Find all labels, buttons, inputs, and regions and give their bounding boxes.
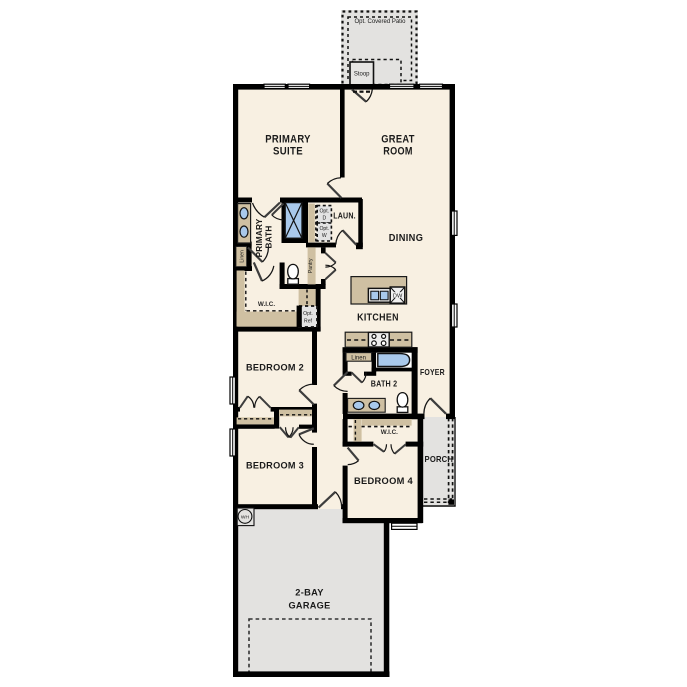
svg-text:Linen: Linen	[240, 250, 246, 263]
svg-text:DINING: DINING	[389, 233, 424, 244]
svg-text:WH: WH	[241, 515, 250, 521]
svg-text:BATH: BATH	[265, 226, 274, 249]
svg-text:FOYER: FOYER	[420, 368, 445, 377]
svg-text:KITCHEN: KITCHEN	[357, 312, 399, 323]
svg-text:BEDROOM 3: BEDROOM 3	[246, 459, 304, 470]
svg-text:Pantry: Pantry	[308, 258, 314, 273]
svg-text:DW: DW	[393, 293, 403, 299]
svg-text:BEDROOM 2: BEDROOM 2	[246, 361, 304, 372]
svg-text:PRIMARY: PRIMARY	[265, 134, 311, 146]
svg-text:PRIMARY: PRIMARY	[255, 218, 264, 257]
svg-text:GARAGE: GARAGE	[289, 599, 331, 610]
svg-text:SUITE: SUITE	[273, 146, 303, 158]
svg-text:Opt.: Opt.	[319, 209, 329, 215]
svg-text:W.I.C.: W.I.C.	[258, 301, 275, 308]
svg-text:Opt. Covered Patio: Opt. Covered Patio	[354, 19, 406, 25]
svg-text:GREAT: GREAT	[381, 134, 415, 146]
svg-text:Opt.: Opt.	[319, 226, 329, 232]
svg-text:W: W	[322, 233, 327, 239]
svg-text:BEDROOM 4: BEDROOM 4	[354, 475, 413, 486]
svg-text:Opt.: Opt.	[303, 311, 313, 317]
svg-text:BATH 2: BATH 2	[371, 379, 398, 388]
svg-text:LAUN.: LAUN.	[333, 212, 356, 221]
svg-text:Linen: Linen	[351, 355, 366, 361]
svg-text:2-BAY: 2-BAY	[295, 586, 324, 597]
svg-text:W.I.C.: W.I.C.	[381, 429, 398, 436]
svg-text:Ref: Ref	[304, 318, 313, 324]
svg-text:Stoop: Stoop	[354, 71, 370, 77]
svg-text:ROOM: ROOM	[383, 146, 413, 158]
svg-text:D: D	[322, 216, 326, 222]
svg-text:PORCH: PORCH	[425, 455, 454, 464]
